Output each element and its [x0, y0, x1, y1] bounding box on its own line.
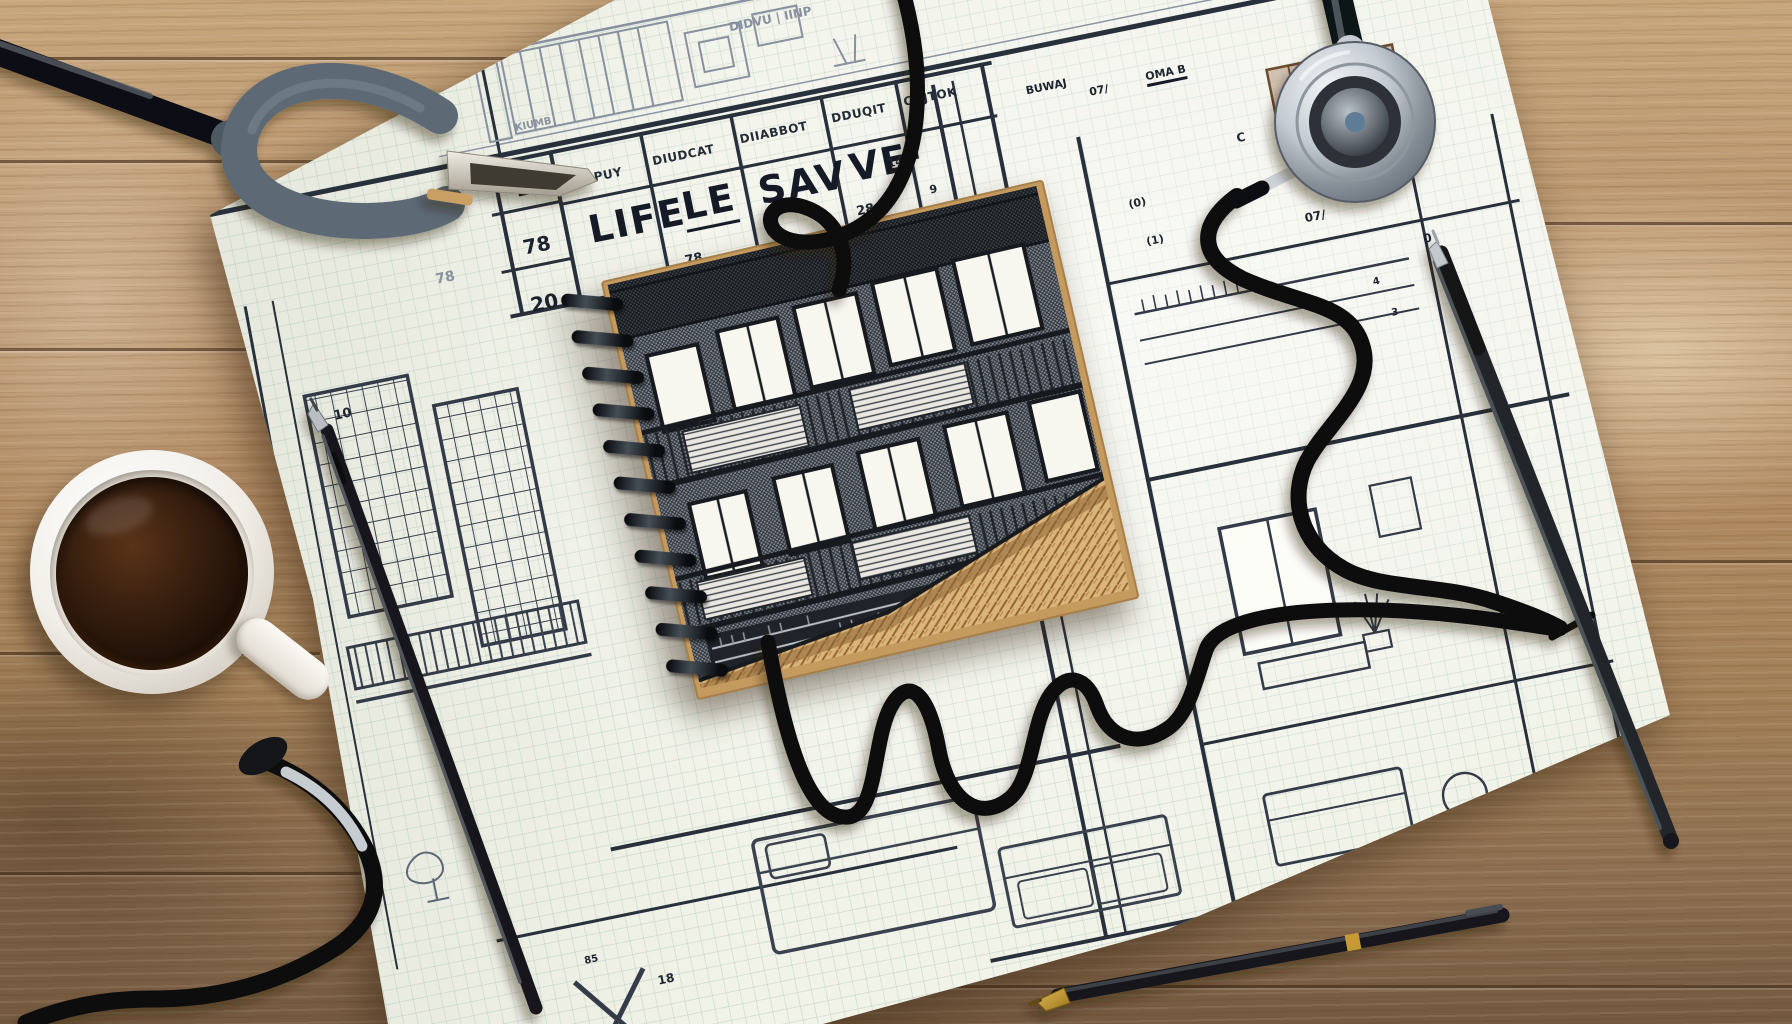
- brown-cabinet-sketch: [1267, 44, 1403, 120]
- furniture-sketches: [554, 759, 1192, 1024]
- coffee-surface: [56, 477, 248, 670]
- room-sketches: [1132, 244, 1523, 872]
- elevation-sketches: [294, 351, 633, 908]
- coffee-cup: [30, 450, 274, 694]
- desk-scene: AIVIPUY DIUDCAT DIIABBOT DDUQIT COJTOK 1…: [0, 0, 1792, 1024]
